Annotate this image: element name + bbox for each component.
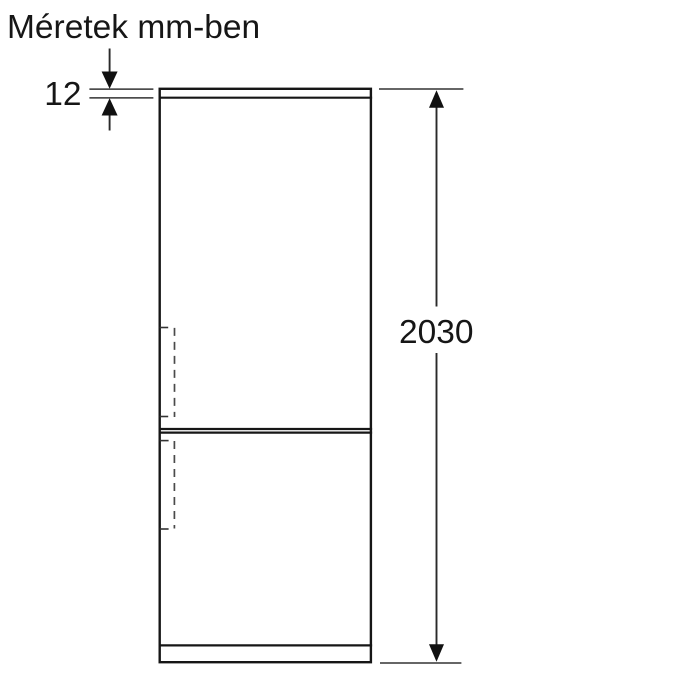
svg-text:2030: 2030 bbox=[399, 314, 474, 351]
svg-text:Méretek mm-ben: Méretek mm-ben bbox=[7, 9, 260, 46]
svg-text:12: 12 bbox=[44, 76, 81, 113]
